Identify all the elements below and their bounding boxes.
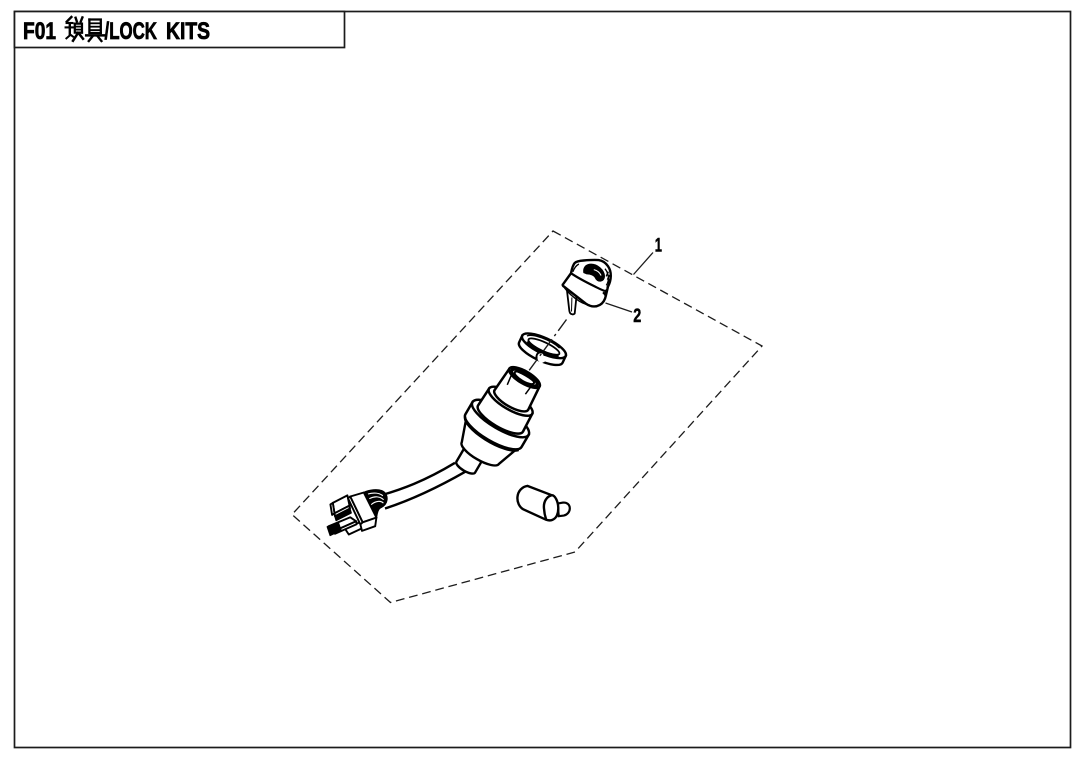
svg-text:2: 2	[633, 306, 641, 327]
svg-text:KITS: KITS	[166, 18, 210, 45]
svg-text:1: 1	[655, 235, 662, 256]
svg-text:F01: F01	[23, 18, 56, 45]
svg-text:/LOCK: /LOCK	[105, 18, 158, 45]
